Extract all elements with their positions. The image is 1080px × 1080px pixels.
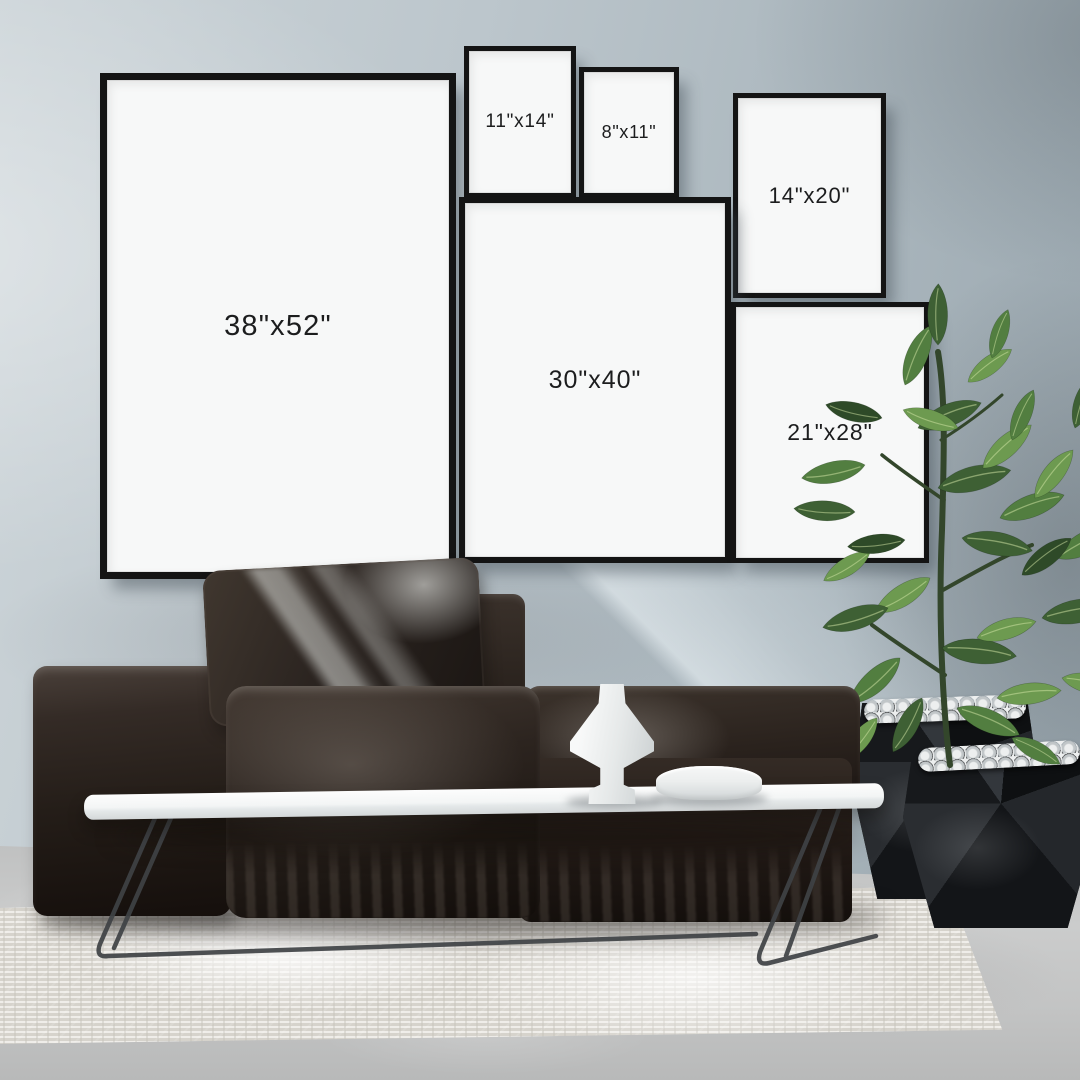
frame-size-label: 14"x20" (769, 183, 851, 209)
sofa-armrest (33, 666, 231, 916)
living-room-frame-size-mockup: 38"x52" 11"x14" 8"x11" 14"x20" 30"x40" 2… (0, 0, 1080, 1080)
frame-14x20: 14"x20" (733, 93, 886, 298)
sofa-light-dapple (226, 840, 540, 918)
frame-30x40: 30"x40" (459, 197, 731, 563)
sofa-light-dapple (519, 844, 852, 922)
frame-size-label: 8"x11" (602, 122, 657, 143)
bowl (656, 766, 762, 800)
table-shadow (112, 822, 864, 850)
frame-8x11: 8"x11" (579, 67, 679, 198)
frame-38x52: 38"x52" (100, 73, 456, 579)
frame-size-label: 38"x52" (224, 310, 332, 343)
frame-size-label: 30"x40" (549, 366, 642, 395)
frame-11x14: 11"x14" (464, 46, 576, 198)
frame-size-label: 11"x14" (485, 111, 554, 133)
